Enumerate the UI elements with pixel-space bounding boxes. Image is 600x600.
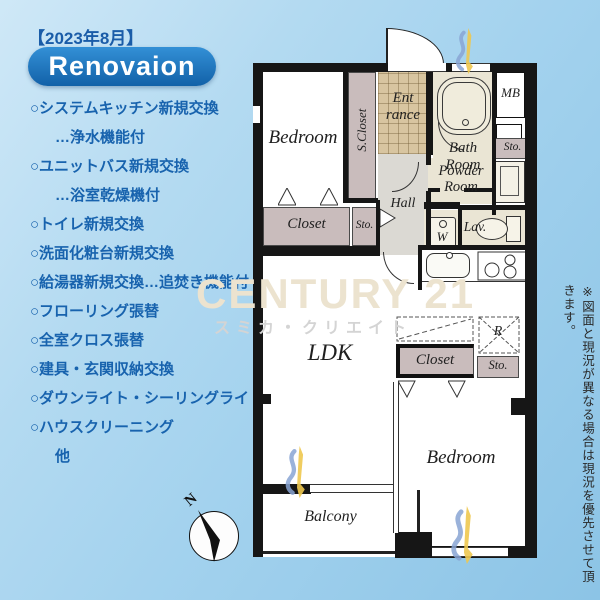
logo-mark-icon [448, 506, 480, 564]
label-entrance: Ent rance [374, 90, 432, 123]
renovation-flyer: 【2023年8月】 Renovaion ○システムキッチン新規交換 …浄水機能付… [0, 0, 600, 600]
label-lav: Lav. [460, 220, 490, 235]
date-label: 【2023年8月】 [28, 24, 143, 49]
label-bedroom-bottom: Bedroom [406, 448, 516, 469]
label-sto-upper: Sto. [494, 141, 531, 154]
list-item: ○トイレ新規交換 [30, 210, 260, 239]
label-closet-left: Closet [263, 216, 350, 233]
renovation-badge: Renovaion [28, 47, 216, 86]
wall [263, 394, 271, 404]
compass-needle-icon [190, 500, 250, 570]
list-item: ○建具・玄関収納交換 [30, 355, 260, 384]
label-mb: MB [496, 86, 525, 100]
list-item: ○ダウンライト・シーリングライト [30, 384, 260, 413]
wall [511, 398, 527, 415]
door-swing-icon [448, 380, 466, 398]
entrance-doorway [388, 63, 446, 72]
list-item: ○システムキッチン新規交換 [30, 94, 260, 123]
wall [343, 198, 378, 203]
watermark-brand: CENTURY 21 [196, 270, 516, 318]
wall [395, 532, 432, 558]
logo-mark-icon [282, 446, 312, 498]
entrance-door-leaf [386, 28, 388, 64]
wall [253, 246, 380, 256]
wall [525, 63, 537, 557]
disclaimer-text: ※図面と現況が異なる場合は現況を優先させて頂きます。 [559, 284, 597, 596]
entrance-door-arc [386, 28, 444, 64]
list-item: ○ハウスクリーニング [30, 413, 260, 442]
window-ldk-balcony [310, 484, 395, 493]
wall [420, 245, 537, 250]
door-swing-icon [278, 188, 296, 206]
label-sto-left: Sto. [350, 219, 379, 232]
list-item: ○洗面化粧台新規交換 [30, 239, 260, 268]
label-balcony: Balcony [278, 508, 383, 526]
wall [343, 63, 348, 203]
wall [424, 202, 460, 209]
door-swing-icon [398, 380, 416, 398]
toilet-tank-icon [506, 216, 521, 242]
list-item: ○ユニットバス新規交換 [30, 152, 260, 181]
list-item: …浄水機能付 [30, 123, 260, 152]
water-heater-icon [494, 161, 525, 203]
list-item: 他 [30, 442, 260, 471]
label-s-closet: S.Closet [355, 66, 369, 194]
label-hall: Hall [378, 196, 428, 211]
label-sto-right: Sto. [477, 359, 519, 373]
wall-vent [253, 106, 260, 123]
sliding-door [393, 382, 399, 533]
label-powder: Powder Room [426, 164, 496, 196]
wall [458, 205, 531, 210]
watermark-sub: スミカ・クリエイト [214, 314, 412, 338]
list-item: …浴室乾燥機付 [30, 181, 260, 210]
label-washer: W [428, 230, 456, 244]
door-swing-icon [320, 188, 338, 206]
label-ldk: LDK [288, 340, 372, 365]
label-bedroom-top: Bedroom [263, 128, 343, 149]
label-refrigerator: R [486, 324, 510, 339]
label-closet-right: Closet [396, 352, 474, 369]
logo-mark-icon [452, 28, 480, 74]
